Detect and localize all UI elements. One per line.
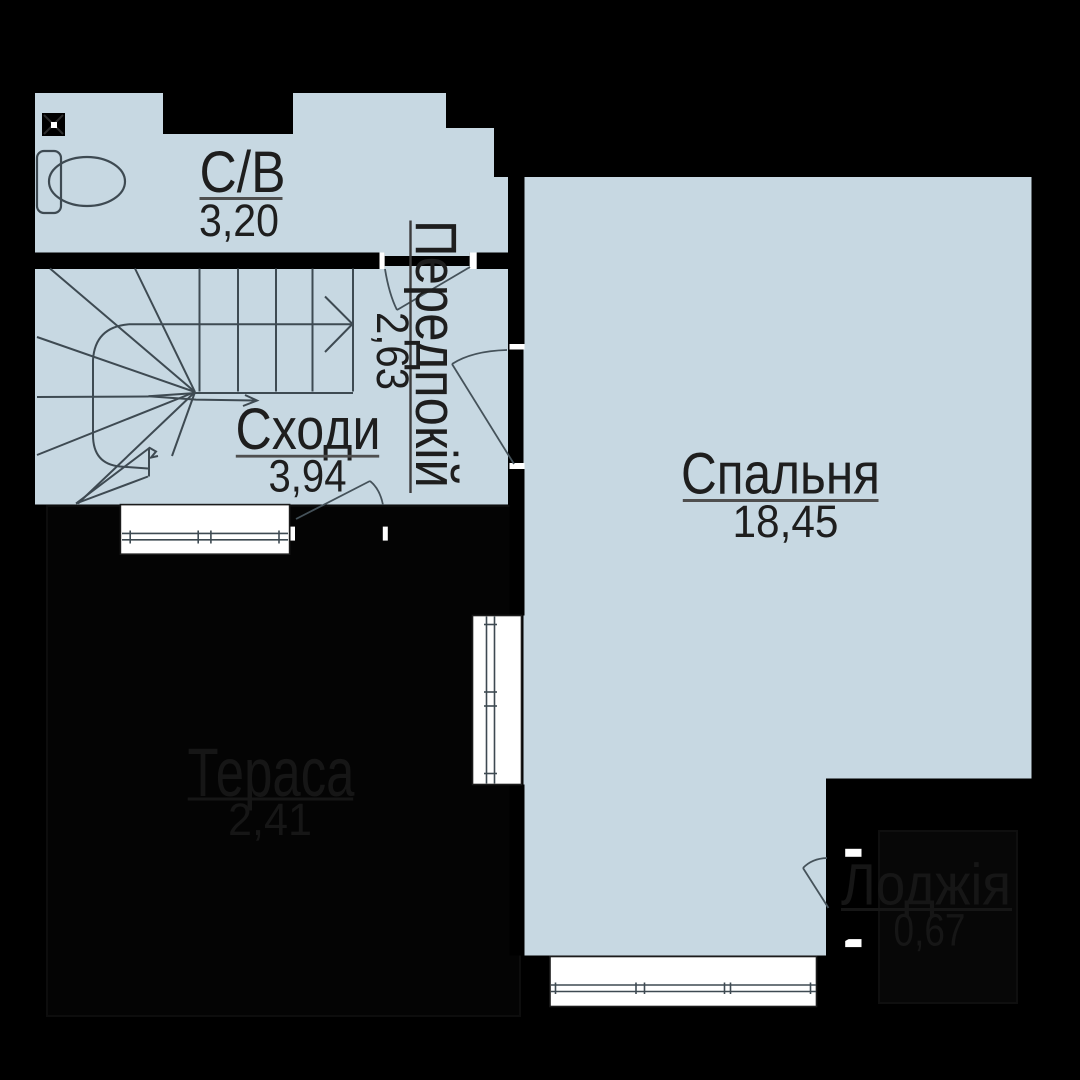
svg-text:0,67: 0,67 bbox=[894, 905, 966, 956]
svg-text:2,41: 2,41 bbox=[228, 794, 312, 845]
svg-text:3,94: 3,94 bbox=[269, 451, 347, 502]
svg-text:18,45: 18,45 bbox=[733, 496, 839, 547]
svg-text:3,20: 3,20 bbox=[199, 195, 279, 246]
svg-text:2,63: 2,63 bbox=[367, 312, 418, 390]
